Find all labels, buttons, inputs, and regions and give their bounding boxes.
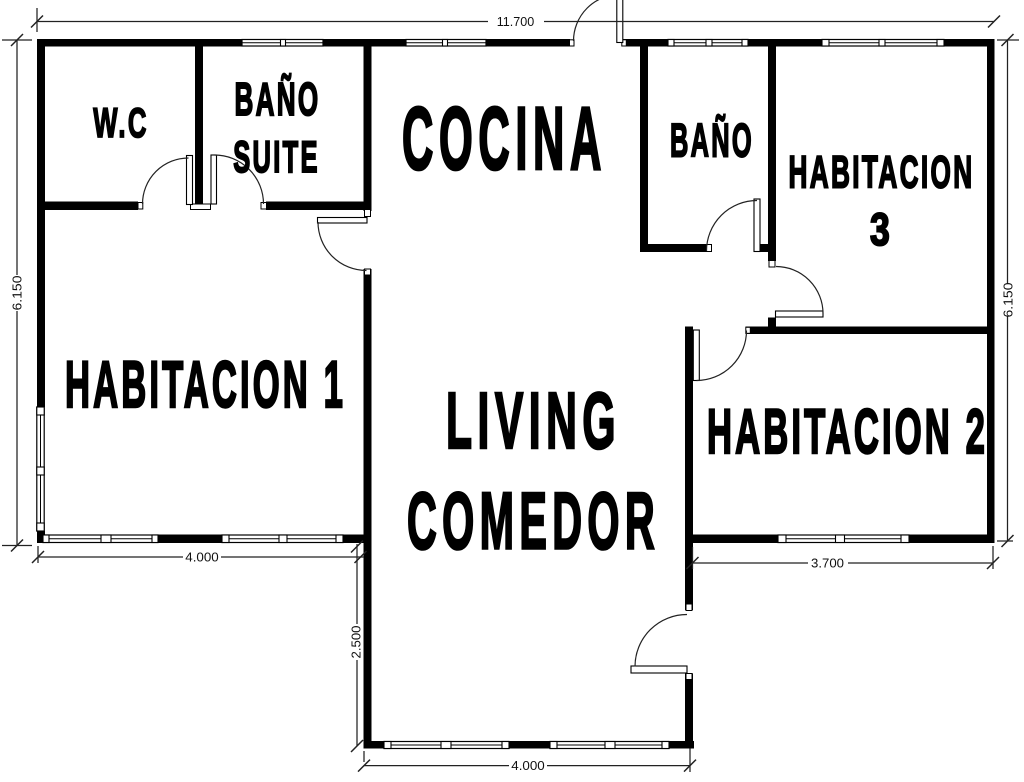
svg-text:3: 3 — [870, 204, 893, 255]
svg-text:HABITACION: HABITACION — [789, 147, 975, 198]
svg-text:COMEDOR: COMEDOR — [407, 477, 660, 567]
svg-text:3.700: 3.700 — [811, 555, 844, 570]
svg-text:6.150: 6.150 — [9, 276, 24, 311]
svg-text:SUITE: SUITE — [233, 133, 320, 182]
svg-text:W.C: W.C — [93, 99, 149, 146]
svg-text:HABITACION 2: HABITACION 2 — [707, 397, 988, 467]
svg-text:11.700: 11.700 — [497, 14, 535, 29]
svg-text:6.150: 6.150 — [1001, 283, 1016, 318]
svg-text:COCINA: COCINA — [402, 88, 607, 188]
svg-text:BAÑO: BAÑO — [670, 114, 754, 168]
svg-text:4.000: 4.000 — [185, 550, 219, 565]
svg-text:BAÑO: BAÑO — [235, 73, 321, 125]
svg-text:2.500: 2.500 — [348, 626, 363, 659]
svg-text:LIVING: LIVING — [446, 376, 621, 465]
svg-text:4.000: 4.000 — [511, 758, 545, 773]
svg-text:HABITACION 1: HABITACION 1 — [65, 348, 346, 421]
